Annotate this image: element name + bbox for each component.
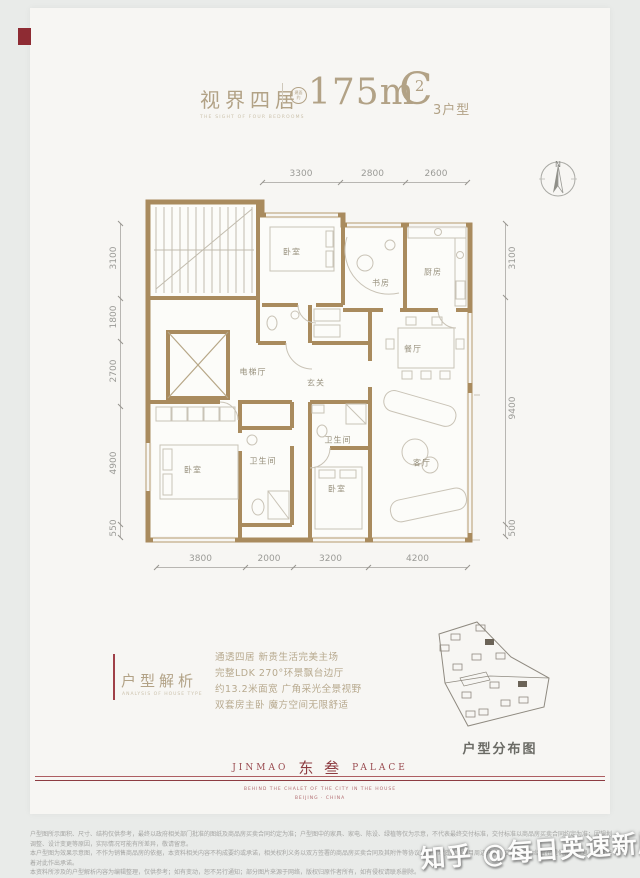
analysis-line: 约13.2米面宽 广角采光全景视野 xyxy=(215,682,362,698)
room-label-foyer: 玄关 xyxy=(307,378,325,389)
dim-label: 2700 xyxy=(109,351,119,391)
dim-bottom: 3800 2000 3200 4200 xyxy=(156,567,467,568)
analysis-subtitle: ANALYSIS OF HOUSE TYPE xyxy=(122,692,203,697)
dim-label: 3300 xyxy=(262,169,340,179)
analysis-line: 双套房主卧 魔方空间无限舒适 xyxy=(215,698,362,714)
header-divider xyxy=(282,83,283,107)
dim-label: 2000 xyxy=(245,554,293,564)
area-badge-line2: 约 xyxy=(297,96,301,101)
dim-label: 4900 xyxy=(109,443,119,483)
analysis-line: 通透四居 新贵生活完美主场 xyxy=(215,650,362,666)
type-letter: C xyxy=(399,64,433,115)
dim-left: 3100 1800 2700 4900 550 xyxy=(120,223,121,537)
brand-logo-cn: 东 叁 xyxy=(298,757,342,778)
analysis-accent-bar xyxy=(113,654,115,700)
floorplan-drawing xyxy=(140,195,480,550)
distribution-buildings-highlight xyxy=(485,639,527,687)
brand-logo-right: PALACE xyxy=(352,763,408,773)
type-suffix: 3户型 xyxy=(433,99,470,118)
dim-label: 550 xyxy=(109,508,119,548)
room-label-study: 书房 xyxy=(372,278,390,289)
room-label-living: 客厅 xyxy=(413,458,431,469)
brand-logo-left: JINMAO xyxy=(232,763,288,773)
dim-right: 3100 9400 500 xyxy=(505,223,506,536)
analysis-title: 户型解析 xyxy=(121,670,197,691)
analysis-lines: 通透四居 新贵生活完美主场 完整LDK 270°环景飘台边厅 约13.2米面宽 … xyxy=(215,650,362,714)
room-label-bath-master: 卫生间 xyxy=(250,456,277,467)
dim-top: 3300 2800 2600 xyxy=(262,182,467,183)
room-label-kitchen: 厨房 xyxy=(424,267,442,278)
distribution-title: 户型分布图 xyxy=(440,738,560,757)
room-label-dining: 餐厅 xyxy=(404,344,422,355)
red-corner-mark xyxy=(18,28,31,45)
room-label-elevator-hall: 电梯厅 xyxy=(240,367,267,378)
area-badge: 建面 约 xyxy=(290,87,307,104)
room-label-bath-2: 卫生间 xyxy=(325,435,352,446)
distribution-map xyxy=(430,614,610,740)
room-label-bedroom-3: 卧室 xyxy=(328,484,346,495)
brand-logo: JINMAO 东 叁 PALACE xyxy=(30,757,610,778)
disclaimer-line: 本资料所涉及的户型解析内容为编辑整理，仅供参考；如有变动，恕不另行通知；部分图片… xyxy=(30,868,612,878)
dim-label: 4200 xyxy=(368,554,467,564)
dim-label: 3800 xyxy=(156,554,245,564)
brand-tagline: BEHIND THE CHALET OF THE CITY IN THE HOU… xyxy=(30,787,610,792)
dim-label: 2600 xyxy=(405,169,467,179)
north-arrow: N xyxy=(538,155,582,201)
room-label-bedroom-master: 卧室 xyxy=(184,465,202,476)
room-label-bedroom-top: 卧室 xyxy=(283,247,301,258)
dim-label: 3100 xyxy=(508,238,518,278)
dim-label: 2800 xyxy=(340,169,405,179)
dim-label: 3200 xyxy=(293,554,368,564)
dim-label: 500 xyxy=(508,508,518,548)
brand-location: BEIJING · CHINA xyxy=(30,796,610,801)
dim-label: 1800 xyxy=(109,297,119,337)
distribution-buildings xyxy=(440,625,528,717)
series-subtitle: THE SIGHT OF FOUR BEDROOMS xyxy=(200,115,305,120)
analysis-line: 完整LDK 270°环景飘台边厅 xyxy=(215,666,362,682)
dim-label: 3100 xyxy=(109,238,119,278)
header: 视界四居 THE SIGHT OF FOUR BEDROOMS 建面 约 175… xyxy=(0,68,640,120)
brand-divider-line-1 xyxy=(35,776,605,777)
north-label: N xyxy=(555,160,561,169)
dim-label: 9400 xyxy=(508,388,518,428)
brand-divider-line-2 xyxy=(35,780,605,781)
series-title: 视界四居 xyxy=(200,84,305,113)
